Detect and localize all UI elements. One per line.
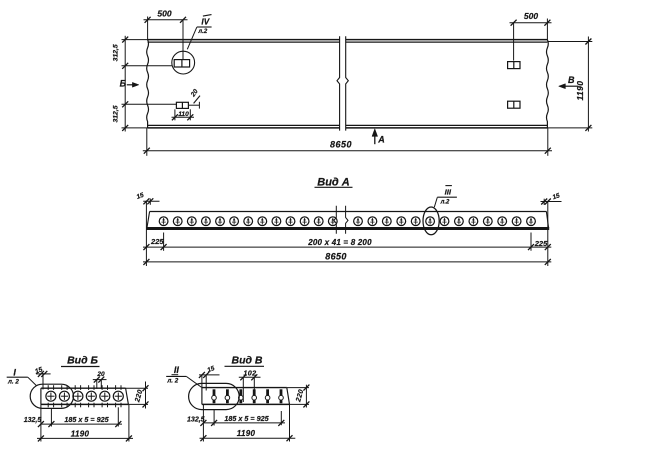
svg-text:8650: 8650: [330, 140, 352, 150]
svg-text:225: 225: [534, 239, 548, 248]
svg-text:IV: IV: [201, 17, 210, 26]
svg-text:л.2: л.2: [197, 29, 207, 35]
svg-text:А: А: [377, 135, 385, 145]
svg-text:Вид Б: Вид Б: [67, 355, 98, 367]
svg-text:II: II: [174, 365, 180, 375]
svg-text:185 х 5 = 925: 185 х 5 = 925: [64, 415, 109, 424]
svg-text:л. 2: л. 2: [7, 379, 19, 386]
svg-text:110: 110: [178, 111, 189, 118]
svg-text:1190: 1190: [71, 429, 90, 438]
svg-text:л. 2: л. 2: [166, 377, 178, 384]
svg-text:л.2: л.2: [440, 200, 450, 206]
svg-text:I: I: [13, 367, 16, 377]
svg-text:Б: Б: [120, 79, 127, 89]
svg-text:500: 500: [524, 11, 538, 21]
svg-text:132,5: 132,5: [24, 417, 42, 424]
svg-text:15: 15: [136, 192, 146, 201]
svg-text:185 х 5 = 925: 185 х 5 = 925: [224, 414, 269, 423]
svg-text:1190: 1190: [237, 429, 256, 438]
svg-text:15: 15: [552, 192, 562, 201]
svg-text:225: 225: [150, 237, 164, 246]
svg-text:500: 500: [157, 9, 171, 19]
svg-text:1190: 1190: [575, 81, 585, 101]
svg-text:8650: 8650: [325, 252, 347, 262]
svg-text:220: 220: [134, 389, 144, 404]
svg-text:220: 220: [295, 389, 305, 404]
svg-text:В: В: [568, 75, 575, 85]
svg-text:312,5: 312,5: [112, 105, 119, 122]
svg-text:312,5: 312,5: [112, 44, 119, 61]
svg-text:200 х 41 = 8 200: 200 х 41 = 8 200: [307, 238, 372, 247]
svg-text:132,5: 132,5: [187, 416, 205, 423]
svg-text:III: III: [445, 187, 452, 196]
svg-text:Вид В: Вид В: [232, 355, 263, 367]
